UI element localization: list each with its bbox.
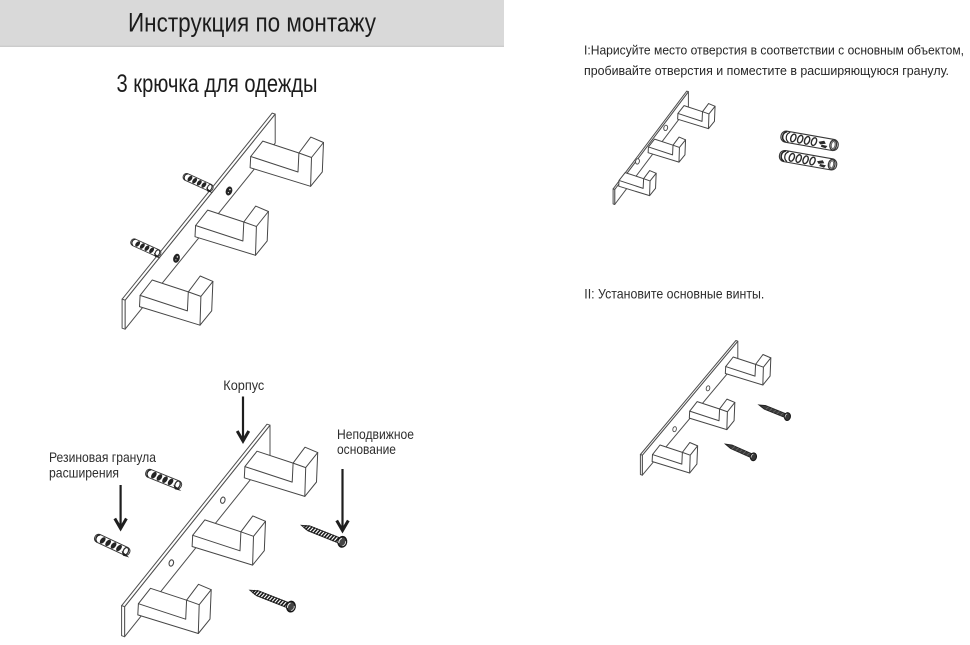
svg-text:Резиновая гранула: Резиновая гранула: [49, 449, 156, 465]
svg-text:расширения: расширения: [49, 464, 119, 480]
svg-text:II: Установите основные винты.: II: Установите основные винты.: [584, 286, 764, 302]
svg-text:Корпус: Корпус: [223, 377, 264, 393]
svg-text:Инструкция по монтажу: Инструкция по монтажу: [128, 8, 376, 38]
svg-text:3 крючка для одежды: 3 крючка для одежды: [117, 70, 318, 98]
svg-text:пробивайте отверстия и помести: пробивайте отверстия и поместите в расши…: [584, 63, 949, 78]
svg-text:I:Нарисуйте место отверстия в: I:Нарисуйте место отверстия в соответств…: [584, 42, 964, 57]
svg-text:Неподвижное: Неподвижное: [337, 426, 414, 442]
svg-text:основание: основание: [337, 441, 396, 457]
